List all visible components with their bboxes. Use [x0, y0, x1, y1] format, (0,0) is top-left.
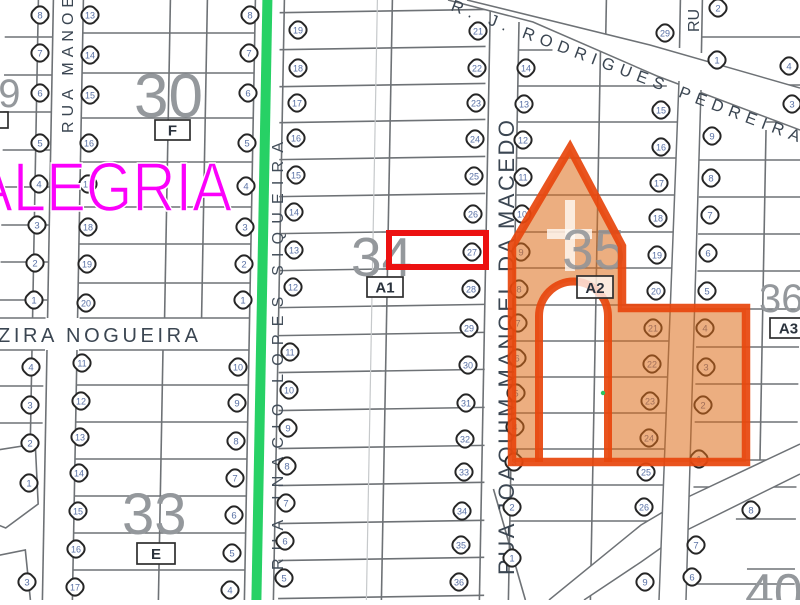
svg-text:1: 1 [714, 55, 719, 66]
svg-text:6: 6 [245, 88, 250, 99]
svg-text:10: 10 [233, 362, 243, 372]
svg-text:6: 6 [282, 536, 287, 547]
svg-text:20: 20 [651, 286, 661, 296]
svg-text:E: E [151, 546, 161, 563]
svg-text:28: 28 [466, 284, 476, 294]
svg-text:2: 2 [241, 259, 246, 270]
svg-text:7: 7 [283, 498, 288, 509]
svg-text:8: 8 [708, 173, 713, 184]
svg-text:25: 25 [641, 467, 651, 477]
svg-text:5: 5 [229, 548, 234, 559]
svg-text:A3: A3 [779, 320, 798, 337]
svg-text:22: 22 [472, 63, 482, 73]
svg-text:8: 8 [247, 10, 252, 21]
svg-text:17: 17 [70, 582, 80, 592]
svg-text:8: 8 [37, 10, 42, 21]
svg-text:20: 20 [81, 298, 91, 308]
svg-text:12: 12 [518, 135, 528, 145]
svg-text:4: 4 [243, 181, 248, 192]
svg-text:36: 36 [454, 577, 464, 587]
svg-text:7: 7 [37, 48, 42, 59]
svg-text:21: 21 [473, 26, 483, 36]
svg-text:13: 13 [75, 432, 85, 442]
svg-text:3: 3 [789, 99, 794, 110]
svg-text:23: 23 [471, 98, 481, 108]
svg-text:15: 15 [291, 170, 301, 180]
svg-text:13: 13 [519, 99, 529, 109]
svg-text:14: 14 [85, 50, 95, 60]
svg-text:14: 14 [289, 207, 299, 217]
svg-text:16: 16 [291, 133, 301, 143]
svg-text:9: 9 [234, 398, 239, 409]
svg-text:15: 15 [73, 506, 83, 516]
svg-text:19: 19 [652, 250, 662, 260]
svg-text:8: 8 [233, 436, 238, 447]
svg-text:1: 1 [26, 478, 31, 489]
svg-text:4: 4 [28, 362, 33, 373]
svg-text:7: 7 [693, 540, 698, 551]
svg-text:30: 30 [463, 360, 473, 370]
svg-text:29: 29 [660, 28, 670, 38]
svg-text:2: 2 [32, 258, 37, 269]
svg-text:29: 29 [0, 72, 21, 116]
svg-text:ZIRA NOGUEIRA: ZIRA NOGUEIRA [0, 325, 199, 347]
svg-text:3: 3 [24, 577, 29, 588]
svg-text:2: 2 [27, 438, 32, 449]
svg-text:14: 14 [74, 468, 84, 478]
svg-text:26: 26 [639, 502, 649, 512]
svg-text:9: 9 [709, 131, 714, 142]
svg-text:1: 1 [509, 553, 514, 564]
svg-text:13: 13 [289, 245, 299, 255]
svg-text:16: 16 [71, 544, 81, 554]
svg-text:6: 6 [231, 510, 236, 521]
svg-text:11: 11 [285, 347, 294, 357]
svg-text:9: 9 [642, 577, 647, 588]
svg-text:11: 11 [518, 172, 527, 182]
svg-text:A1: A1 [375, 279, 394, 296]
svg-text:A2: A2 [585, 280, 604, 297]
svg-text:31: 31 [461, 398, 471, 408]
svg-text:6: 6 [705, 248, 710, 259]
svg-text:5: 5 [704, 286, 709, 297]
svg-text:12: 12 [288, 282, 298, 292]
svg-text:36: 36 [759, 277, 800, 321]
svg-text:34: 34 [457, 506, 467, 516]
svg-text:ALEGRIA: ALEGRIA [0, 148, 232, 226]
svg-text:8: 8 [284, 461, 289, 472]
svg-text:7: 7 [707, 210, 712, 221]
svg-text:16: 16 [656, 142, 666, 152]
svg-text:RU: RU [686, 9, 703, 32]
svg-text:RUA MANOEL: RUA MANOEL [60, 0, 77, 133]
svg-text:24: 24 [470, 134, 480, 144]
svg-text:15: 15 [85, 90, 95, 100]
svg-text:18: 18 [653, 213, 663, 223]
svg-text:11: 11 [77, 358, 86, 368]
svg-text:7: 7 [246, 48, 251, 59]
svg-text:25: 25 [469, 171, 479, 181]
svg-text:3: 3 [242, 222, 247, 233]
svg-text:16: 16 [84, 138, 94, 148]
svg-text:12: 12 [76, 396, 86, 406]
svg-text:F: F [168, 122, 177, 139]
svg-text:19: 19 [293, 25, 303, 35]
svg-text:17: 17 [292, 98, 302, 108]
svg-text:15: 15 [656, 105, 666, 115]
svg-text:27: 27 [467, 247, 477, 257]
svg-text:5: 5 [244, 138, 249, 149]
svg-text:13: 13 [85, 10, 95, 20]
svg-text:6: 6 [37, 88, 42, 99]
svg-text:17: 17 [654, 178, 664, 188]
svg-text:33: 33 [122, 482, 187, 547]
svg-text:7: 7 [232, 473, 237, 484]
svg-text:26: 26 [468, 209, 478, 219]
svg-text:32: 32 [460, 434, 470, 444]
svg-text:10: 10 [284, 385, 294, 395]
svg-text:8: 8 [748, 505, 753, 516]
svg-text:9: 9 [285, 423, 290, 434]
svg-text:35: 35 [456, 540, 466, 550]
svg-text:14: 14 [521, 63, 531, 73]
svg-text:1: 1 [31, 295, 36, 306]
svg-text:2: 2 [715, 3, 720, 14]
svg-text:33: 33 [459, 467, 469, 477]
svg-text:3: 3 [27, 400, 32, 411]
svg-text:5: 5 [281, 573, 286, 584]
svg-text:4: 4 [786, 61, 791, 72]
svg-text:29: 29 [464, 323, 474, 333]
svg-text:6: 6 [689, 572, 694, 583]
svg-text:40: 40 [745, 564, 800, 600]
svg-text:18: 18 [293, 63, 303, 73]
svg-text:1: 1 [240, 295, 245, 306]
svg-text:19: 19 [82, 259, 92, 269]
svg-text:4: 4 [227, 585, 232, 596]
svg-text:2: 2 [509, 502, 514, 513]
